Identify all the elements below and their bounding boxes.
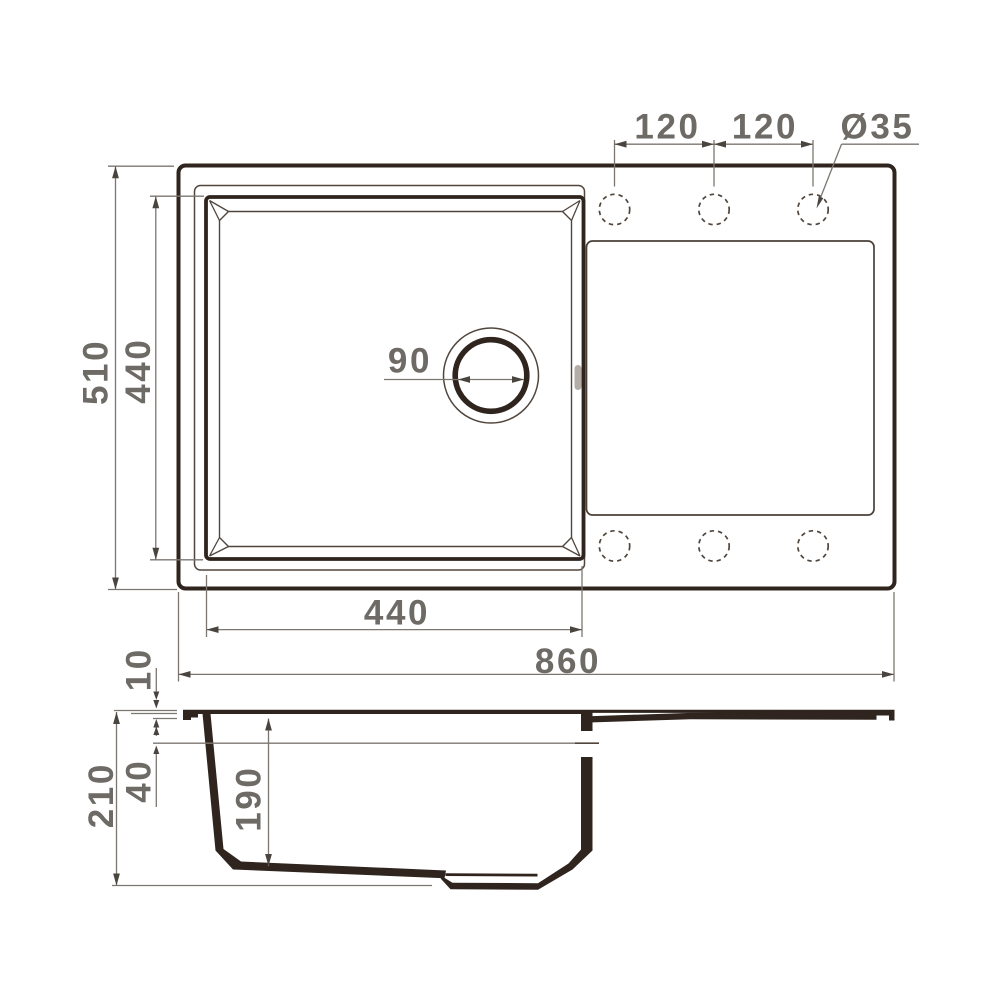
svg-text:10: 10 (120, 647, 159, 691)
svg-text:190: 190 (230, 766, 269, 832)
svg-text:440: 440 (364, 594, 430, 633)
svg-text:510: 510 (77, 339, 116, 405)
svg-text:210: 210 (82, 762, 121, 828)
svg-text:860: 860 (535, 642, 601, 681)
svg-text:440: 440 (119, 338, 158, 404)
svg-text:120: 120 (732, 108, 798, 147)
svg-text:90: 90 (388, 342, 432, 381)
svg-text:40: 40 (120, 759, 159, 803)
svg-text:120: 120 (634, 108, 700, 147)
svg-text:Ø35: Ø35 (841, 108, 915, 147)
